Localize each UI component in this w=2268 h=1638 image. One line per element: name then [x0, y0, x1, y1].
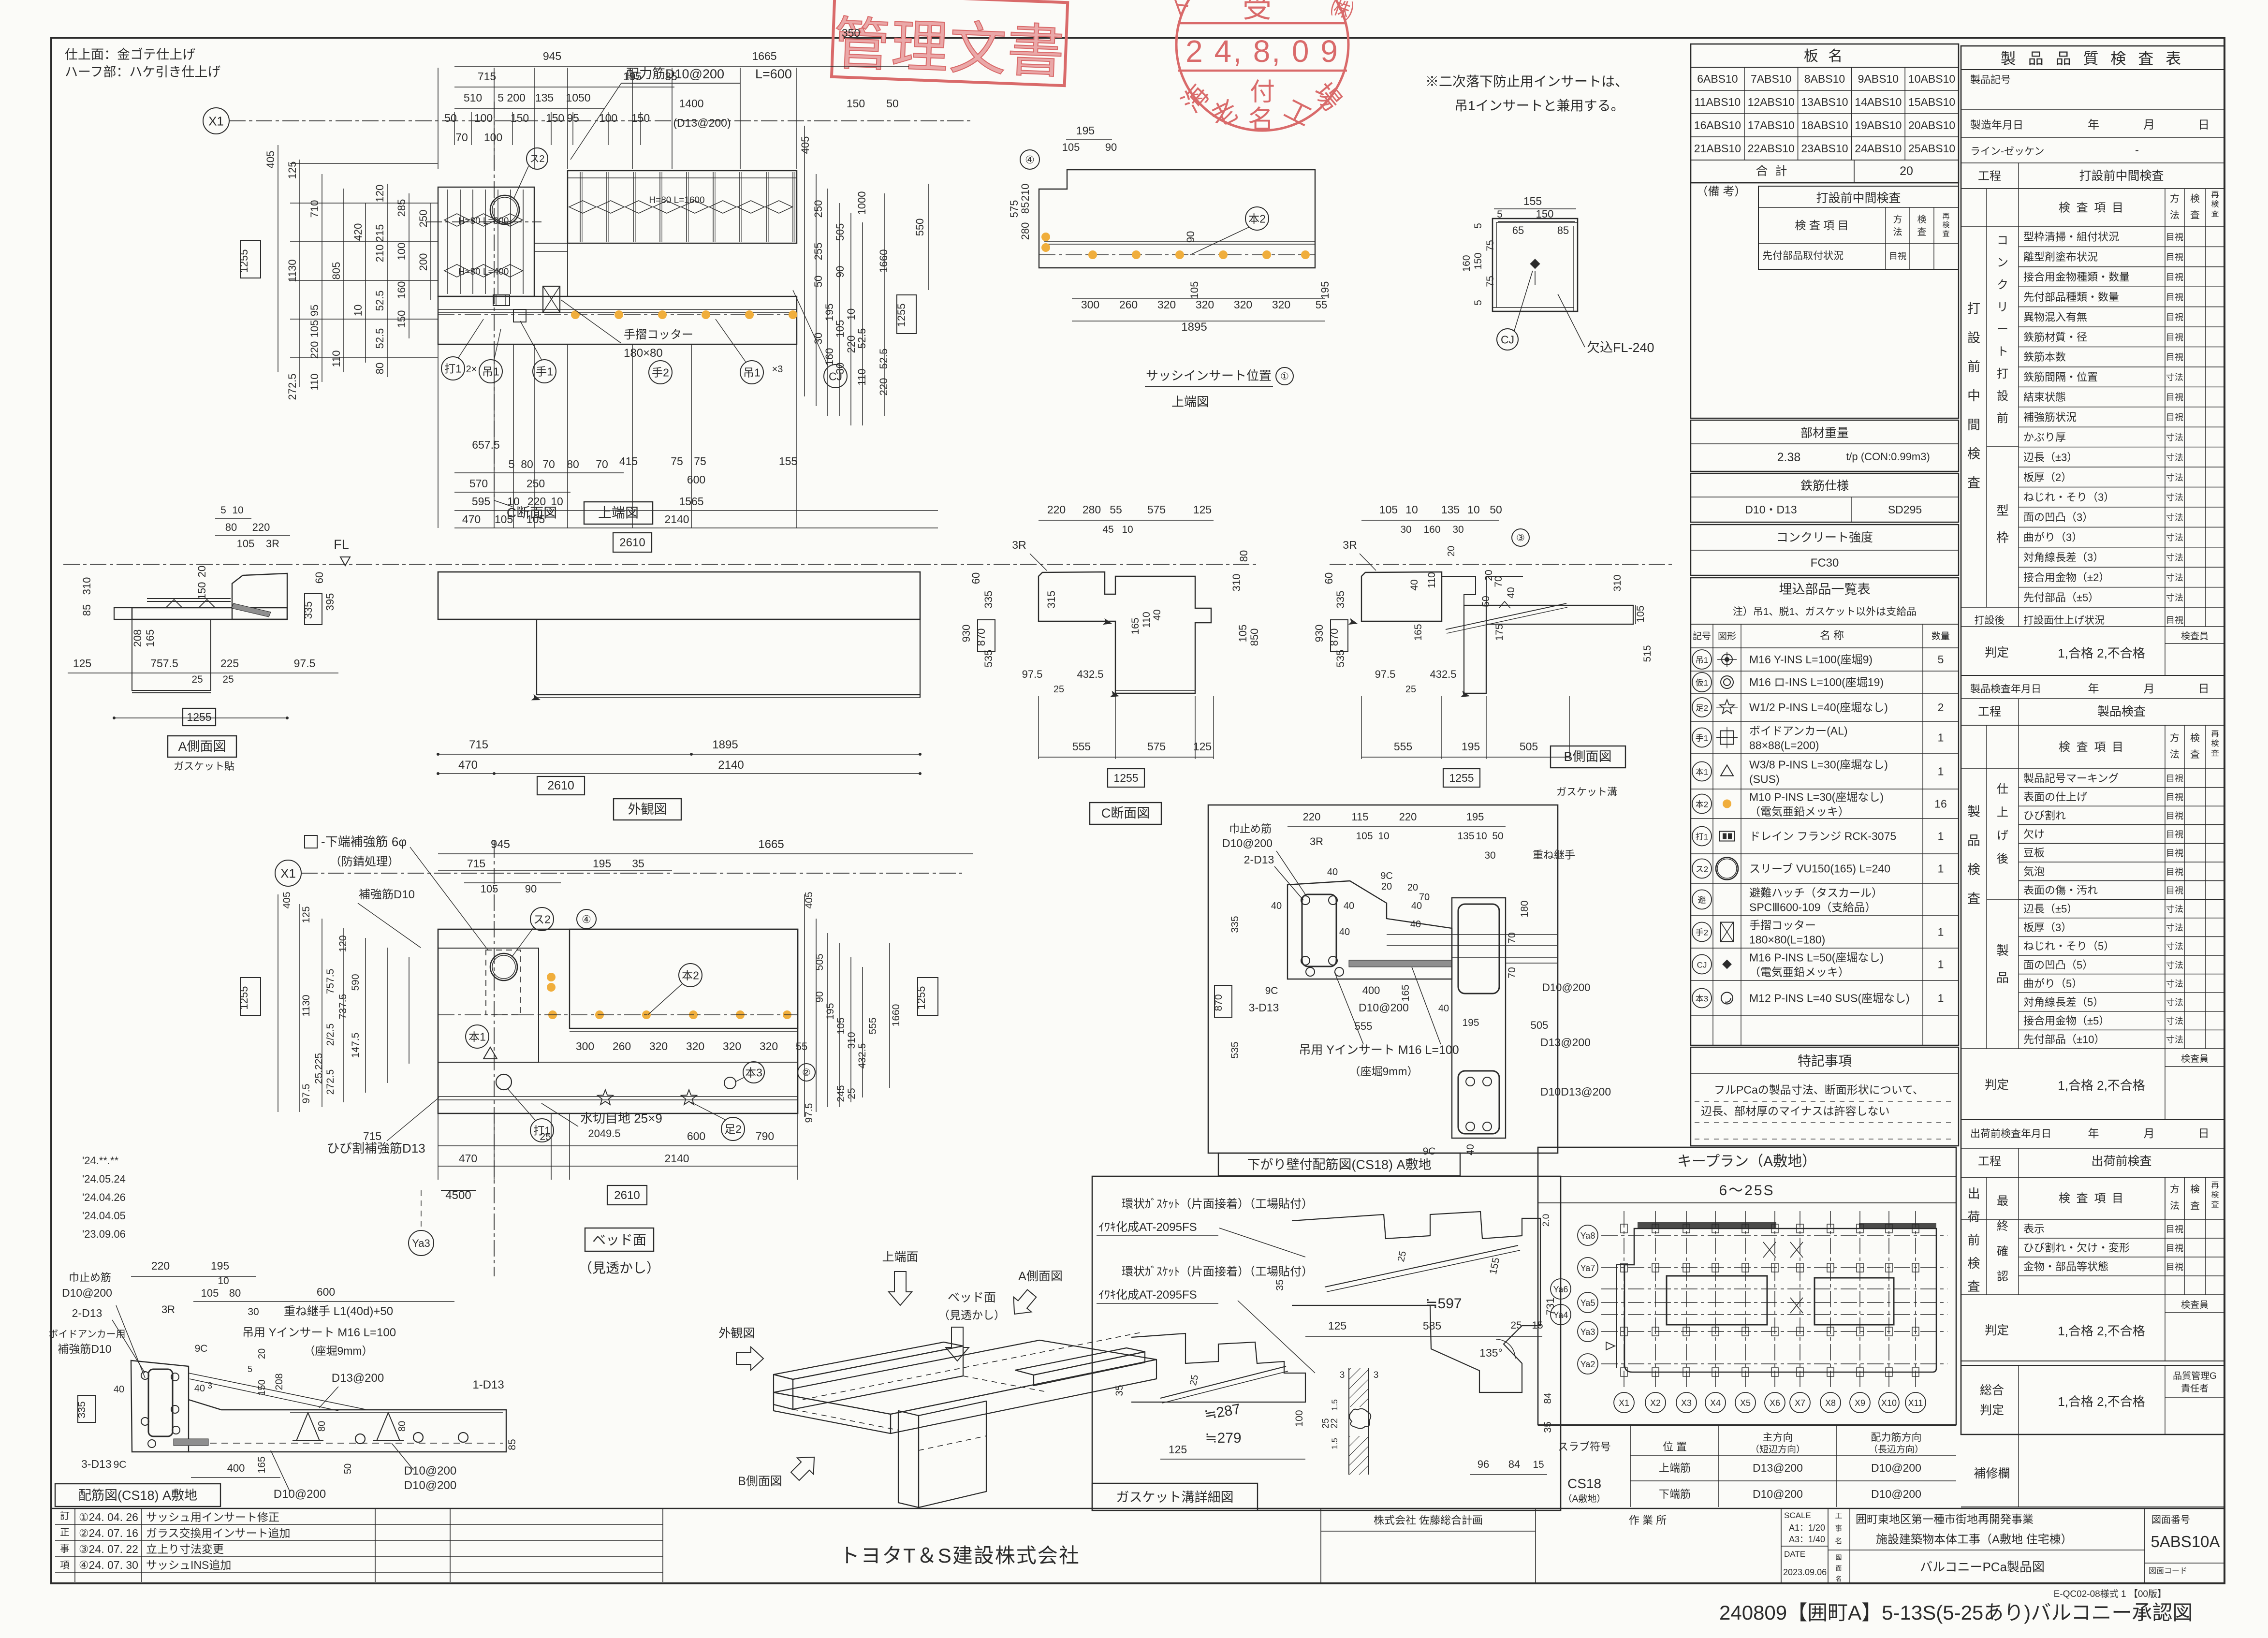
svg-text:415: 415: [619, 455, 638, 468]
svg-text:470: 470: [462, 513, 481, 526]
svg-text:合 計: 合 計: [1756, 164, 1789, 178]
svg-text:105: 105: [1356, 831, 1373, 842]
svg-text:2610: 2610: [614, 1189, 640, 1202]
svg-text:寸法: 寸法: [2166, 433, 2183, 442]
svg-text:105: 105: [1062, 141, 1080, 153]
svg-text:575: 575: [1147, 740, 1166, 753]
svg-text:A1：1/20: A1：1/20: [1789, 1523, 1825, 1533]
svg-text:検: 検: [1967, 447, 1980, 461]
svg-text:コ: コ: [1997, 234, 2008, 247]
svg-text:Ya7: Ya7: [1580, 1263, 1595, 1273]
svg-text:215: 215: [374, 224, 386, 242]
svg-text:945: 945: [491, 838, 510, 851]
svg-text:30: 30: [1400, 524, 1411, 535]
svg-text:本3: 本3: [745, 1066, 762, 1079]
svg-text:90: 90: [834, 266, 846, 278]
svg-text:出荷前検査: 出荷前検査: [2091, 1155, 2151, 1168]
svg-text:600: 600: [317, 1286, 335, 1298]
svg-text:吊1: 吊1: [1696, 656, 1708, 665]
svg-text:1895: 1895: [712, 738, 738, 751]
svg-text:製品検査: 製品検査: [2097, 705, 2146, 718]
svg-text:製造年月日: 製造年月日: [1970, 119, 2023, 131]
svg-text:検: 検: [2211, 200, 2219, 209]
svg-text:月: 月: [2144, 1127, 2155, 1140]
svg-text:ト: ト: [1997, 345, 2008, 358]
svg-text:M10 P-INS L=30(座堀なし): M10 P-INS L=30(座堀なし): [1749, 791, 1884, 804]
svg-text:210: 210: [1019, 184, 1031, 202]
svg-text:曲がり（3）: 曲がり（3）: [2023, 531, 2082, 543]
svg-text:目視: 目視: [2166, 393, 2183, 402]
svg-text:再: 再: [1942, 212, 1949, 220]
svg-text:足2: 足2: [1696, 703, 1708, 713]
svg-text:ひび割補強筋D13: ひび割補強筋D13: [327, 1141, 425, 1155]
svg-text:ガスケット溝: ガスケット溝: [1556, 787, 1617, 798]
svg-text:30: 30: [1452, 524, 1463, 535]
svg-text:L=600: L=600: [755, 67, 792, 81]
svg-text:D10@200: D10@200: [404, 1479, 456, 1492]
svg-text:80: 80: [225, 521, 237, 533]
svg-text:25: 25: [191, 674, 203, 685]
svg-text:④24. 07. 30: ④24. 07. 30: [79, 1559, 138, 1571]
svg-text:（電気亜鉛メッキ）: （電気亜鉛メッキ）: [1749, 805, 1849, 818]
svg-text:表面の傷・汚れ: 表面の傷・汚れ: [2023, 884, 2098, 896]
svg-text:2049.5: 2049.5: [588, 1127, 620, 1140]
svg-text:辺長（±3）: 辺長（±3）: [2023, 451, 2078, 463]
svg-text:15ABS10: 15ABS10: [1908, 96, 1955, 108]
svg-text:97.5: 97.5: [294, 657, 316, 670]
svg-text:110: 110: [1426, 572, 1437, 588]
svg-text:X1: X1: [1619, 1398, 1629, 1408]
svg-text:432.5: 432.5: [1430, 668, 1456, 680]
svg-text:後: 後: [1997, 852, 2008, 865]
svg-text:272.5: 272.5: [325, 1069, 336, 1095]
svg-text:再: 再: [2211, 730, 2219, 738]
svg-text:335: 335: [302, 601, 314, 619]
svg-text:600: 600: [687, 1130, 705, 1142]
svg-text:220: 220: [1303, 811, 1321, 823]
svg-text:850: 850: [1248, 629, 1260, 646]
svg-text:105: 105: [1635, 605, 1646, 622]
svg-text:板厚（3）: 板厚（3）: [2023, 921, 2072, 934]
svg-text:97.5: 97.5: [1022, 668, 1043, 680]
svg-text:5: 5: [248, 1364, 252, 1374]
svg-text:M16 P-INS L=50(座堀なし): M16 P-INS L=50(座堀なし): [1749, 951, 1884, 964]
svg-text:180: 180: [1519, 900, 1530, 917]
svg-text:272.5: 272.5: [286, 373, 298, 400]
svg-text:3: 3: [207, 1381, 212, 1390]
svg-text:立上り寸法変更: 立上り寸法変更: [146, 1543, 224, 1555]
svg-text:2140: 2140: [718, 759, 744, 772]
svg-text:欠け: 欠け: [2023, 828, 2045, 840]
svg-text:D10@200: D10@200: [1359, 1001, 1409, 1014]
svg-text:510: 510: [464, 91, 482, 104]
svg-text:10ABS10: 10ABS10: [1908, 73, 1955, 85]
svg-text:荷: 荷: [1967, 1210, 1980, 1224]
svg-text:×3: ×3: [772, 364, 783, 375]
svg-text:25: 25: [540, 1131, 551, 1142]
svg-text:年: 年: [2088, 1127, 2099, 1140]
svg-text:サッシインサート位置: サッシインサート位置: [1146, 368, 1272, 383]
svg-text:3R: 3R: [266, 538, 279, 550]
svg-text:D10・D13: D10・D13: [1745, 503, 1797, 516]
svg-text:面: 面: [1835, 1565, 1842, 1572]
svg-text:20: 20: [1900, 164, 1913, 178]
svg-text:②: ②: [802, 1068, 811, 1078]
svg-text:目視: 目視: [2166, 615, 2183, 625]
svg-text:補強筋D10: 補強筋D10: [58, 1343, 111, 1355]
svg-text:工程: 工程: [1978, 705, 2001, 718]
svg-text:105: 105: [834, 320, 846, 338]
svg-text:板 名: 板 名: [1804, 48, 1845, 64]
svg-text:辺長、部材厚のマイナスは許容しない: 辺長、部材厚のマイナスは許容しない: [1701, 1105, 1890, 1117]
svg-text:3-D13: 3-D13: [1249, 1001, 1279, 1014]
svg-text:X3: X3: [1681, 1398, 1692, 1408]
svg-text:寸法: 寸法: [2166, 453, 2183, 462]
svg-text:鉄筋間隔・位置: 鉄筋間隔・位置: [2023, 371, 2098, 383]
svg-text:405: 405: [264, 151, 277, 169]
svg-text:80: 80: [397, 1421, 408, 1432]
svg-text:①24. 04. 26: ①24. 04. 26: [79, 1511, 138, 1523]
svg-text:Ya8: Ya8: [1580, 1231, 1595, 1241]
svg-text:配力筋方向: 配力筋方向: [1871, 1432, 1922, 1443]
svg-text:最: 最: [1997, 1195, 2008, 1208]
svg-text:35: 35: [1114, 1385, 1125, 1396]
svg-text:目視: 目視: [2166, 774, 2183, 783]
svg-text:トヨタT＆S建設株式会社: トヨタT＆S建設株式会社: [839, 1544, 1080, 1567]
svg-text:出: 出: [1967, 1186, 1980, 1201]
svg-text:115: 115: [1351, 811, 1368, 823]
svg-text:M16 ロ-INS L=100(座堀19): M16 ロ-INS L=100(座堀19): [1749, 676, 1884, 688]
svg-text:195: 195: [1462, 1017, 1479, 1028]
svg-text:（備 考）: （備 考）: [1697, 185, 1746, 198]
svg-text:寸法: 寸法: [2166, 373, 2183, 382]
svg-text:10: 10: [1405, 503, 1418, 516]
svg-text:165: 165: [144, 629, 156, 647]
svg-text:220: 220: [308, 341, 321, 359]
svg-text:C断面図: C断面図: [1101, 806, 1150, 820]
svg-text:ねじれ・そり（5）: ねじれ・そり（5）: [2023, 940, 2114, 952]
svg-text:査: 査: [2211, 749, 2219, 758]
svg-text:2610: 2610: [619, 536, 645, 549]
svg-text:本2: 本2: [682, 969, 699, 981]
svg-text:正: 正: [60, 1527, 70, 1538]
svg-text:X4: X4: [1710, 1398, 1721, 1408]
svg-text:重ね継手: 重ね継手: [1533, 849, 1575, 861]
svg-text:ス2: ス2: [529, 154, 544, 164]
svg-text:208: 208: [132, 629, 144, 647]
svg-text:165: 165: [1400, 984, 1411, 1001]
svg-text:表示: 表示: [2023, 1223, 2045, 1235]
svg-text:55: 55: [1110, 503, 1122, 516]
svg-text:70: 70: [596, 458, 608, 470]
svg-text:17ABS10: 17ABS10: [1748, 119, 1795, 132]
svg-text:製品検査年月日: 製品検査年月日: [1970, 684, 2041, 695]
svg-text:FL: FL: [334, 537, 349, 552]
svg-text:280: 280: [1019, 222, 1031, 240]
svg-text:目視: 目視: [2166, 413, 2183, 423]
svg-text:150: 150: [847, 97, 865, 110]
svg-text:検 査 項 目: 検 査 項 目: [1795, 219, 1848, 232]
svg-text:15: 15: [1533, 1459, 1544, 1470]
svg-text:84: 84: [1542, 1392, 1553, 1404]
svg-text:工: 工: [1835, 1512, 1842, 1520]
svg-text:3: 3: [1340, 1370, 1345, 1380]
svg-text:120: 120: [337, 935, 349, 952]
svg-text:3R: 3R: [1012, 539, 1026, 551]
svg-text:打設前中間検査: 打設前中間検査: [2079, 169, 2164, 183]
svg-text:1130: 1130: [301, 994, 312, 1016]
svg-text:575: 575: [1008, 200, 1020, 218]
svg-text:80: 80: [317, 1421, 327, 1432]
svg-text:査: 査: [1967, 476, 1980, 490]
svg-text:FC30: FC30: [1811, 556, 1839, 570]
svg-text:8ABS10: 8ABS10: [1804, 73, 1845, 85]
svg-text:配筋図(CS18) A敷地: 配筋図(CS18) A敷地: [78, 1488, 197, 1503]
svg-text:ｲﾜｷ化成AT-2095FS: ｲﾜｷ化成AT-2095FS: [1098, 1221, 1197, 1234]
svg-text:査: 査: [1967, 892, 1980, 906]
svg-text:B側面図: B側面図: [1564, 749, 1611, 764]
svg-text:検 査 項 目: 検 査 項 目: [2059, 741, 2125, 754]
svg-text:715: 715: [469, 738, 488, 751]
svg-text:10: 10: [1467, 503, 1480, 516]
svg-text:外観図: 外観図: [628, 802, 667, 817]
svg-text:125: 125: [1328, 1319, 1346, 1332]
svg-text:判定: 判定: [1985, 646, 2009, 659]
svg-text:サッシュ用インサート修正: サッシュ用インサート修正: [146, 1511, 279, 1523]
svg-text:280: 280: [1083, 503, 1101, 516]
svg-text:管理文書: 管理文書: [832, 12, 1067, 85]
svg-text:検査員: 検査員: [2181, 1053, 2209, 1064]
svg-text:2140: 2140: [664, 1152, 689, 1165]
svg-text:1.5: 1.5: [1330, 1399, 1339, 1411]
svg-text:総合: 総合: [1980, 1384, 2004, 1397]
svg-text:検: 検: [1942, 221, 1949, 229]
svg-text:方: 方: [2170, 1184, 2180, 1195]
svg-text:150: 150: [257, 1379, 267, 1395]
svg-text:300: 300: [1081, 298, 1099, 311]
svg-text:吊1インサートと兼用する。: 吊1インサートと兼用する。: [1454, 98, 1624, 113]
svg-text:5: 5: [220, 505, 226, 516]
svg-text:147.5: 147.5: [350, 1033, 361, 1058]
svg-text:キープラン（A敷地）: キープラン（A敷地）: [1677, 1154, 1816, 1170]
svg-text:2140: 2140: [664, 513, 689, 526]
svg-text:鉄筋仕様: 鉄筋仕様: [1800, 479, 1849, 493]
svg-text:本1: 本1: [1696, 768, 1708, 777]
svg-text:寸法: 寸法: [2166, 533, 2183, 542]
svg-text:9ABS10: 9ABS10: [1858, 73, 1899, 85]
svg-text:X5: X5: [1740, 1398, 1751, 1408]
svg-text:査: 査: [2211, 210, 2219, 219]
svg-text:（長辺方向）: （長辺方向）: [1869, 1444, 1924, 1455]
svg-text:ス2: ス2: [1696, 865, 1708, 874]
svg-text:W3/8 P-INS L=30(座堀なし): W3/8 P-INS L=30(座堀なし): [1749, 759, 1888, 771]
svg-text:型枠清掃・組付状況: 型枠清掃・組付状況: [2023, 231, 2119, 243]
svg-text:70: 70: [1419, 892, 1430, 903]
svg-text:97.5: 97.5: [804, 1103, 815, 1123]
svg-text:吊1: 吊1: [743, 366, 761, 379]
svg-text:870: 870: [1213, 994, 1224, 1011]
svg-text:1895: 1895: [1181, 321, 1207, 334]
svg-text:'24.**.**: '24.**.**: [82, 1155, 119, 1167]
svg-text:715: 715: [467, 857, 485, 870]
svg-text:水切目地 25×9: 水切目地 25×9: [580, 1111, 662, 1126]
svg-text:製品記号: 製品記号: [1970, 74, 2011, 86]
svg-text:250: 250: [812, 200, 824, 218]
svg-text:10: 10: [1476, 831, 1487, 842]
svg-text:22ABS10: 22ABS10: [1748, 142, 1795, 155]
svg-text:'24.04.05: '24.04.05: [82, 1210, 126, 1222]
svg-text:110: 110: [308, 373, 321, 390]
svg-text:310: 310: [81, 577, 93, 595]
svg-text:870: 870: [1328, 629, 1340, 646]
svg-text:9C: 9C: [114, 1459, 127, 1470]
svg-text:上端筋: 上端筋: [1659, 1462, 1691, 1474]
svg-text:（見透かし）: （見透かし）: [579, 1260, 660, 1275]
svg-text:手摺コッター: 手摺コッター: [1749, 919, 1816, 932]
svg-text:195: 195: [1462, 740, 1480, 753]
svg-text:590: 590: [350, 974, 361, 991]
svg-text:仮1: 仮1: [1696, 678, 1708, 687]
svg-text:22: 22: [1330, 1418, 1340, 1428]
svg-text:X1: X1: [208, 114, 224, 128]
svg-text:420: 420: [352, 223, 364, 241]
svg-text:195: 195: [1076, 124, 1095, 137]
svg-text:40: 40: [1271, 901, 1282, 911]
svg-text:70: 70: [542, 458, 555, 470]
svg-text:535: 535: [982, 650, 995, 668]
svg-text:先付部品（±10）: 先付部品（±10）: [2023, 1034, 2105, 1046]
svg-text:（防錆処理）: （防錆処理）: [330, 855, 399, 868]
svg-text:16ABS10: 16ABS10: [1694, 119, 1741, 132]
svg-text:t/p (CON:0.99m3): t/p (CON:0.99m3): [1846, 451, 1930, 463]
svg-text:1255: 1255: [915, 986, 927, 1010]
svg-text:工程: 工程: [1978, 1155, 2001, 1168]
svg-text:ボイドアンカー用: ボイドアンカー用: [48, 1329, 125, 1340]
svg-text:25: 25: [1188, 1374, 1200, 1387]
svg-text:図面番号: 図面番号: [2151, 1514, 2190, 1525]
svg-text:方: 方: [1893, 214, 1902, 225]
svg-text:3: 3: [1374, 1370, 1379, 1380]
svg-text:1660: 1660: [878, 249, 890, 273]
svg-text:X11: X11: [1908, 1398, 1923, 1408]
svg-text:目視: 目視: [2166, 792, 2183, 802]
svg-text:320: 320: [760, 1040, 778, 1053]
svg-text:52.5: 52.5: [878, 349, 890, 369]
svg-text:巾止め筋: 巾止め筋: [69, 1272, 111, 1284]
svg-text:96: 96: [1478, 1458, 1489, 1470]
svg-text:570: 570: [469, 477, 488, 490]
svg-text:接合用金物（±5）: 接合用金物（±5）: [2023, 1015, 2109, 1027]
svg-text:CJ: CJ: [1697, 961, 1707, 970]
svg-text:250: 250: [527, 477, 545, 490]
svg-text:50: 50: [812, 276, 824, 287]
svg-text:仕上面：金ゴテ仕上げ: 仕上面：金ゴテ仕上げ: [65, 47, 195, 62]
svg-text:9C: 9C: [195, 1343, 208, 1354]
svg-text:D10D13@200: D10D13@200: [1540, 1085, 1611, 1098]
svg-text:85: 85: [507, 1439, 518, 1450]
svg-text:400: 400: [227, 1462, 245, 1474]
svg-text:吊用 Yインサート M16 L=100: 吊用 Yインサート M16 L=100: [1299, 1043, 1459, 1057]
svg-text:30: 30: [834, 363, 846, 374]
svg-text:1255: 1255: [1449, 772, 1474, 784]
svg-text:品: 品: [1967, 834, 1980, 848]
svg-text:目視: 目視: [2166, 886, 2183, 895]
svg-text:対角線長差（3）: 対角線長差（3）: [2023, 551, 2104, 563]
svg-text:囲町東地区第一種市街地再開発事業: 囲町東地区第一種市街地再開発事業: [1856, 1513, 2034, 1525]
svg-text:'23.09.06: '23.09.06: [82, 1228, 126, 1240]
svg-text:本1: 本1: [468, 1030, 486, 1043]
svg-text:図形: 図形: [1718, 631, 1736, 642]
svg-text:日: 日: [2198, 682, 2209, 695]
svg-text:手1: 手1: [536, 365, 553, 378]
svg-text:ひび割れ・欠け・変形: ひび割れ・欠け・変形: [2023, 1242, 2130, 1254]
svg-text:9C: 9C: [1265, 985, 1278, 996]
svg-text:年: 年: [2088, 682, 2099, 695]
svg-text:SD295: SD295: [1888, 503, 1922, 516]
svg-text:品質管理G: 品質管理G: [2173, 1371, 2217, 1381]
svg-text:320: 320: [1234, 298, 1252, 311]
svg-text:検: 検: [2211, 739, 2219, 748]
svg-text:160: 160: [395, 281, 408, 299]
svg-text:16: 16: [1934, 798, 1947, 810]
svg-text:155: 155: [1523, 195, 1542, 207]
svg-text:3R: 3R: [1310, 835, 1323, 848]
svg-text:目視: 目視: [2166, 1225, 2183, 1234]
svg-text:判定: 判定: [1980, 1404, 2004, 1417]
svg-text:面の凹凸（3）: 面の凹凸（3）: [2023, 512, 2093, 524]
svg-text:ス2: ス2: [533, 913, 551, 925]
svg-text:1-D13: 1-D13: [472, 1378, 504, 1391]
svg-text:※二次落下防止用インサートは、: ※二次落下防止用インサートは、: [1425, 74, 1628, 89]
svg-text:検: 検: [2190, 1184, 2200, 1195]
svg-text:M16 Y-INS L=100(座堀9): M16 Y-INS L=100(座堀9): [1749, 653, 1873, 666]
svg-text:検査員: 検査員: [2181, 631, 2209, 642]
svg-text:主方向: 主方向: [1763, 1432, 1793, 1443]
svg-text:仕: 仕: [1997, 783, 2008, 796]
svg-text:出荷前検査年月日: 出荷前検査年月日: [1970, 1128, 2051, 1140]
svg-text:検 査 項 目: 検 査 項 目: [2059, 202, 2125, 215]
svg-text:スラブ符号: スラブ符号: [1558, 1441, 1611, 1453]
svg-text:50: 50: [1492, 831, 1503, 842]
svg-text:600: 600: [687, 473, 705, 486]
svg-text:55: 55: [796, 1040, 807, 1053]
svg-text:555: 555: [1355, 1020, 1373, 1032]
svg-text:バルコニーPCa製品図: バルコニーPCa製品図: [1920, 1560, 2045, 1574]
svg-text:先付部品取付状況: 先付部品取付状況: [1762, 250, 1844, 262]
svg-text:目視: 目視: [1889, 251, 1906, 261]
svg-text:ドレイン フランジ RCK-3075: ドレイン フランジ RCK-3075: [1749, 830, 1896, 843]
svg-text:≒597: ≒597: [1425, 1296, 1462, 1312]
svg-text:1665: 1665: [752, 50, 776, 62]
svg-text:数量: 数量: [1931, 631, 1950, 642]
svg-text:前: 前: [1967, 360, 1980, 374]
svg-text:25: 25: [1396, 1250, 1408, 1263]
svg-text:ベッド面: ベッド面: [592, 1232, 646, 1247]
svg-text:715: 715: [363, 1130, 381, 1142]
svg-text:重ね継手 L1(40d)+50: 重ね継手 L1(40d)+50: [284, 1305, 393, 1318]
svg-text:1255: 1255: [187, 711, 211, 723]
svg-text:40: 40: [194, 1383, 205, 1394]
svg-text:法: 法: [2170, 210, 2180, 221]
svg-text:20: 20: [1407, 882, 1418, 893]
svg-text:85: 85: [1019, 202, 1031, 214]
svg-text:400: 400: [1362, 984, 1380, 996]
svg-text:155: 155: [779, 455, 797, 468]
svg-text:ベッド面: ベッド面: [948, 1291, 996, 1304]
svg-text:離型剤塗布状況: 離型剤塗布状況: [2023, 251, 2098, 263]
svg-text:部材重量: 部材重量: [1800, 426, 1849, 440]
svg-text:補強筋状況: 補強筋状況: [2023, 411, 2077, 424]
